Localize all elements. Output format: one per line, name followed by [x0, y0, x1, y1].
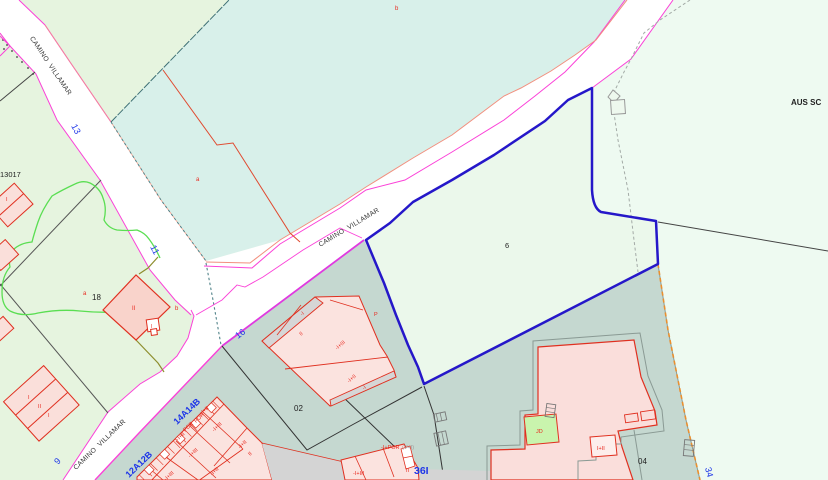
svg-text:I+II: I+II — [597, 446, 605, 452]
svg-text:36I: 36I — [414, 465, 429, 477]
svg-text:04: 04 — [638, 457, 647, 466]
svg-text:P: P — [374, 312, 378, 318]
svg-text:18: 18 — [92, 293, 101, 302]
svg-text:13017: 13017 — [0, 170, 21, 179]
svg-text:II: II — [406, 468, 410, 474]
svg-text:JD: JD — [536, 429, 543, 435]
svg-text:II: II — [38, 404, 42, 410]
svg-text:I: I — [151, 324, 152, 330]
svg-text:II: II — [132, 306, 136, 312]
svg-text:-I+III: -I+III — [353, 471, 365, 477]
svg-text:6: 6 — [505, 241, 509, 250]
svg-text:AUS SC: AUS SC — [791, 98, 821, 107]
svg-text:02: 02 — [294, 404, 303, 413]
svg-text:-I+POR: -I+POR — [381, 445, 400, 451]
svg-text:(V+I): (V+I) — [402, 445, 414, 451]
